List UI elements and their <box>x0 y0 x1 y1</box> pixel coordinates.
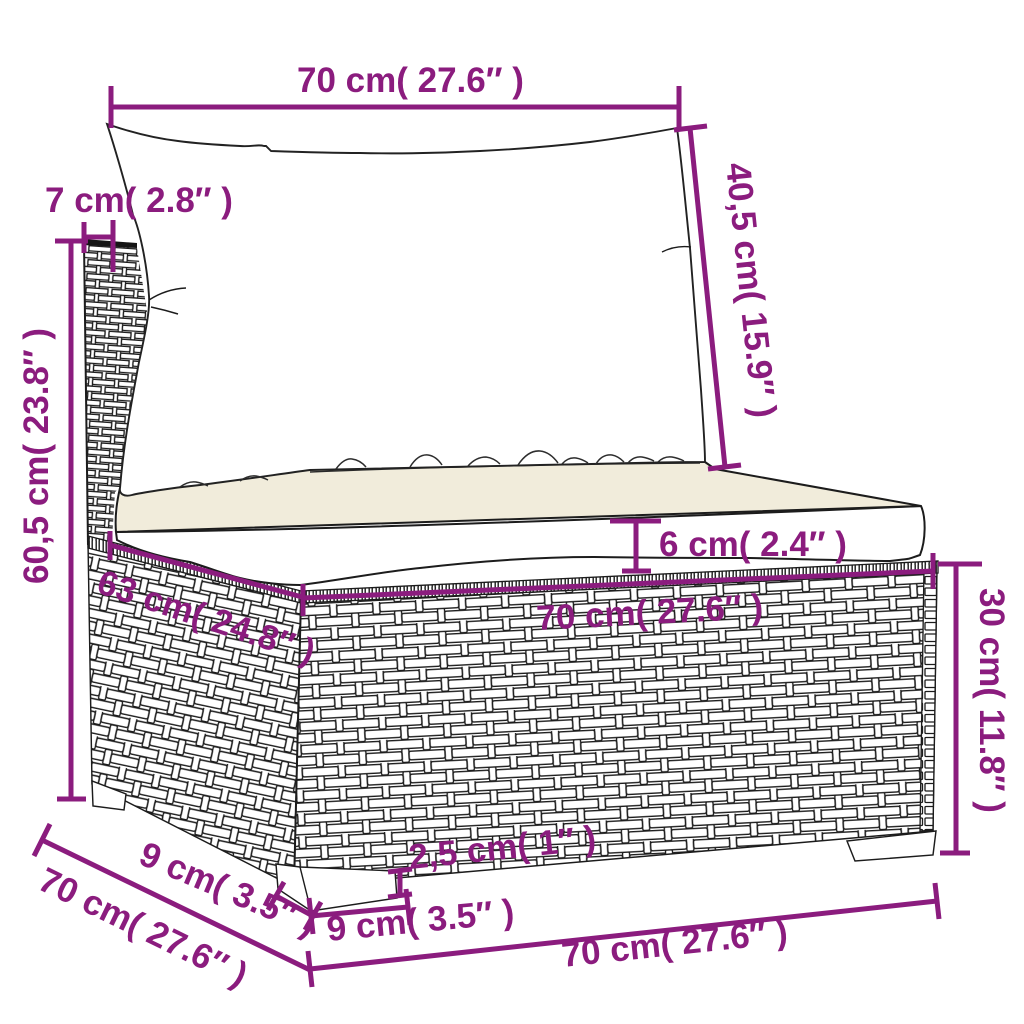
svg-text:6 cm( 2.4″ ): 6 cm( 2.4″ ) <box>659 525 847 564</box>
svg-text:7 cm( 2.8″ ): 7 cm( 2.8″ ) <box>45 181 233 220</box>
svg-text:60,5 cm( 23.8″ ): 60,5 cm( 23.8″ ) <box>17 328 56 584</box>
svg-text:70 cm( 27.6″ ): 70 cm( 27.6″ ) <box>297 61 524 100</box>
svg-text:30 cm( 11.8″ ): 30 cm( 11.8″ ) <box>972 588 1011 813</box>
